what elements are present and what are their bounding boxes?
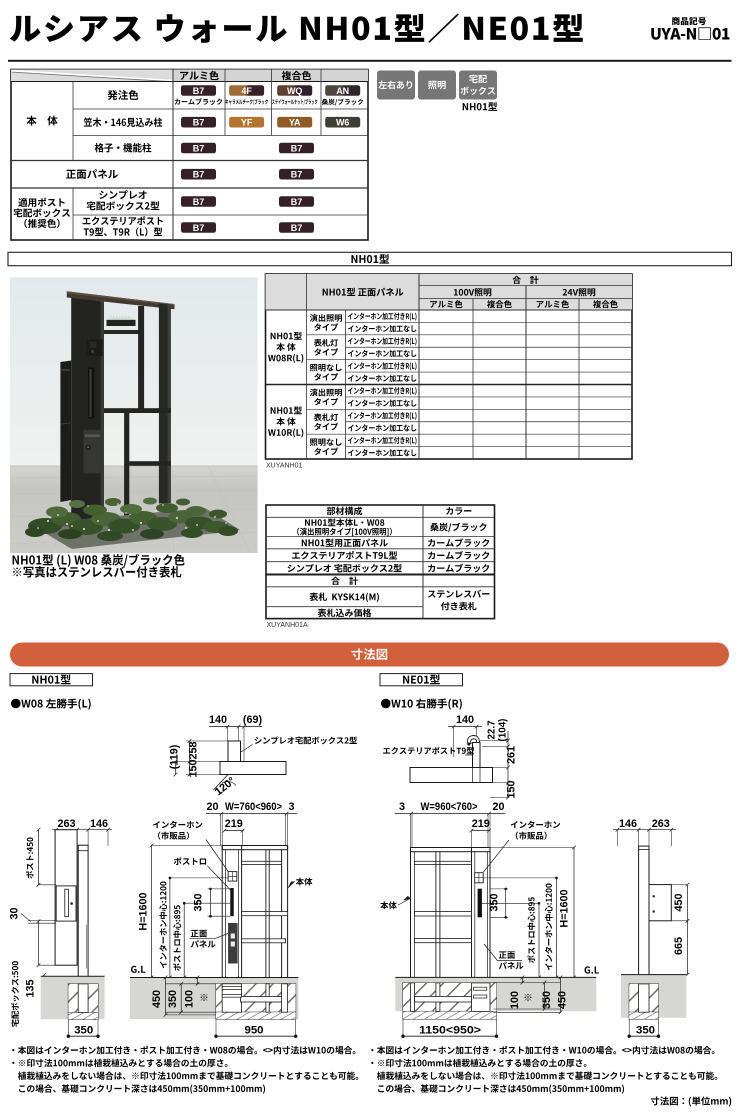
svg-text:146: 146 [90, 818, 108, 830]
svg-text:B7: B7 [193, 118, 205, 128]
svg-text:W=760<960>: W=760<960> [225, 801, 282, 813]
svg-text:140: 140 [209, 714, 227, 726]
svg-text:350: 350 [193, 893, 205, 911]
svg-text:B7: B7 [193, 197, 205, 207]
svg-text:263: 263 [57, 818, 75, 830]
svg-text:950: 950 [244, 1025, 263, 1037]
svg-text:20: 20 [206, 801, 218, 813]
svg-text:219: 219 [472, 818, 490, 830]
svg-text:B7: B7 [193, 86, 205, 96]
svg-text:350: 350 [167, 990, 179, 1008]
svg-text:350: 350 [541, 991, 553, 1009]
svg-text:350: 350 [636, 1025, 655, 1037]
svg-text:1150<950>: 1150<950> [419, 1025, 481, 1037]
svg-text:3: 3 [399, 801, 405, 813]
svg-text:263: 263 [652, 818, 670, 830]
svg-text:450: 450 [151, 990, 163, 1008]
svg-text:AN: AN [336, 86, 349, 96]
svg-text:140: 140 [456, 714, 474, 726]
svg-text:W=960<760>: W=960<760> [421, 801, 478, 813]
svg-text:30: 30 [9, 907, 21, 919]
svg-text:135: 135 [25, 979, 37, 997]
svg-text:B7: B7 [193, 223, 205, 233]
svg-text:450: 450 [557, 991, 569, 1009]
svg-text:W6: W6 [336, 118, 350, 128]
svg-text:(119): (119) [169, 744, 181, 769]
svg-text:WQ: WQ [287, 86, 303, 96]
svg-text:B7: B7 [291, 143, 303, 153]
svg-text:H=1600: H=1600 [559, 889, 571, 927]
svg-text:YA: YA [289, 118, 301, 128]
svg-text:22.7: 22.7 [487, 720, 498, 740]
svg-text:350: 350 [489, 893, 501, 911]
svg-text:(69): (69) [243, 714, 263, 726]
svg-text:YF: YF [241, 118, 253, 128]
svg-text:B7: B7 [193, 170, 205, 180]
svg-text:B7: B7 [291, 197, 303, 207]
svg-text:B7: B7 [291, 223, 303, 233]
svg-text:B7: B7 [291, 170, 303, 180]
svg-text:100: 100 [184, 990, 196, 1008]
svg-text:(104): (104) [498, 719, 509, 742]
svg-text:219: 219 [225, 818, 243, 830]
svg-text:H=1600: H=1600 [137, 892, 149, 930]
svg-text:3: 3 [288, 801, 294, 813]
svg-text:146: 146 [619, 818, 637, 830]
svg-text:B7: B7 [193, 143, 205, 153]
svg-text:XUYANH01: XUYANH01 [266, 463, 303, 470]
svg-text:4F: 4F [241, 86, 252, 96]
svg-text:350: 350 [74, 1025, 93, 1037]
svg-text:450: 450 [673, 893, 685, 911]
svg-text:XUYANH01A: XUYANH01A [267, 622, 308, 629]
svg-text:20: 20 [492, 801, 504, 813]
svg-text:100: 100 [509, 991, 521, 1009]
svg-text:665: 665 [673, 937, 685, 955]
svg-text:261: 261 [506, 746, 518, 764]
